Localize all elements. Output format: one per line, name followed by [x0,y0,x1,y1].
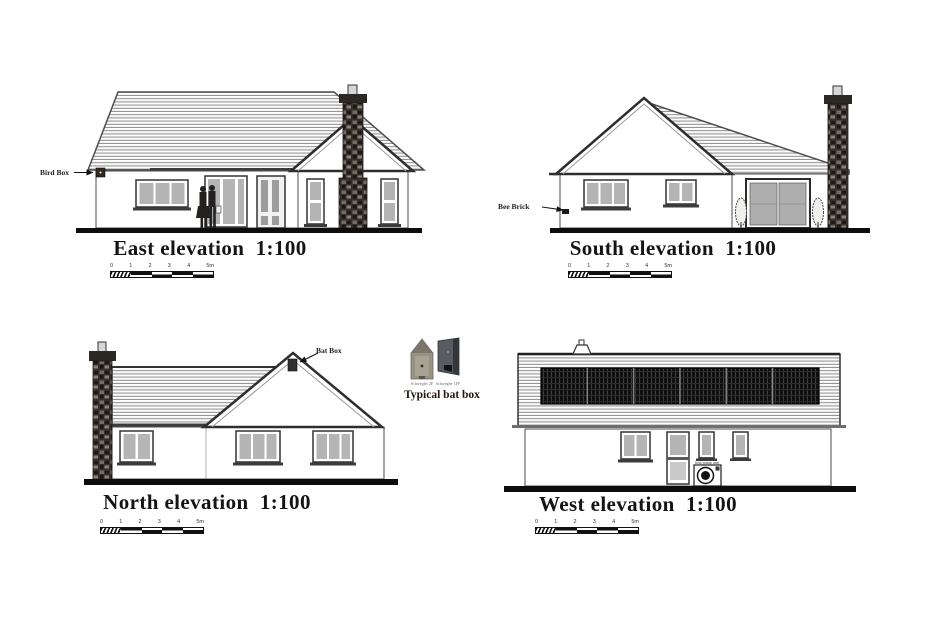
west-scale-bar: 012345m [535,520,639,534]
north-eave-fascia [110,424,210,428]
west-roof-flue [573,340,591,354]
east-scale-bar: 012345m [110,264,214,278]
west-window-narrow-2 [730,432,751,461]
south-ground-line [550,228,870,233]
bee-brick-label: Bee Brick [498,202,529,211]
south-elevation-drawing [542,86,870,233]
south-chimney [824,86,852,228]
east-wing-window-right [378,179,401,227]
east-wing-window-left [304,179,327,227]
north-window-right [310,431,356,466]
scale-bar-ticks: 012345m [568,264,672,270]
west-door [667,432,689,484]
east-ground-line [76,228,422,233]
west-eave-fascia [512,425,846,428]
bat-box-photo-left [411,339,433,379]
east-window-left [133,180,191,211]
bee-brick-marker [562,209,569,214]
north-elevation-title: North elevation 1:100 [103,490,311,515]
north-scale-bar: 012345m [100,520,204,534]
south-sliding-doors [746,179,810,228]
east-elevation-drawing [74,85,424,233]
south-scale-bar: 012345m [568,264,672,278]
west-window-pair [618,432,653,463]
bat-box-marker [288,359,297,371]
west-elevation-drawing [504,340,856,492]
north-elevation-drawing [84,342,398,485]
bat-box-photos [411,338,459,379]
heat-pump-unit [694,465,721,486]
east-front-door [257,176,285,228]
south-elevation-title: South elevation 1:100 [570,236,777,261]
bat-box-photo-right [438,338,459,375]
scale-bar-ticks: 012345m [535,520,639,526]
south-window-right [663,180,699,208]
bat-box-label: Bat Box [316,346,342,355]
bird-box-marker [96,168,105,177]
north-ground-line [84,479,398,485]
north-window-middle [233,431,283,466]
north-window-left [117,431,156,466]
west-elevation-title: West elevation 1:100 [539,492,737,517]
bat-box-caption-left: Schwegler 2F [411,381,433,386]
heat-pump-label: air source heat pump unit [695,456,719,465]
typical-bat-box-label: Typical bat box [404,389,480,401]
solar-panel-array [541,368,819,404]
bat-box-caption-right: Schwegler 1FF [436,381,460,386]
bird-box-label: Bird Box [40,168,69,177]
east-elevation-title: East elevation 1:100 [113,236,306,261]
heat-pump-label-line2: heat pump unit [695,461,719,466]
north-chimney [89,342,116,480]
south-window-left [581,180,631,211]
east-chimney [339,85,367,228]
scale-bar-ticks: 012345m [100,520,204,526]
scale-bar-ticks: 012345m [110,264,214,270]
elevation-sheet: East elevation 1:100 South elevation 1:1… [0,0,930,620]
